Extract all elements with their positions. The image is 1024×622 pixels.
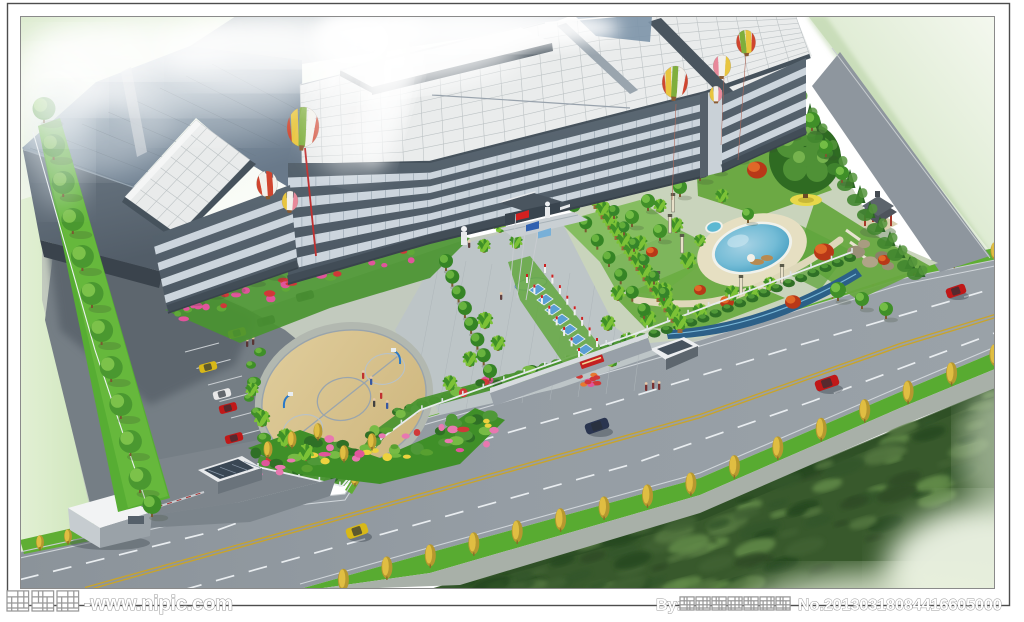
svg-text:No.20130318084416605000: No.20130318084416605000 [798,597,1002,614]
svg-text:-www.nipic.com: -www.nipic.com [84,593,233,615]
svg-text:By:: By: [656,597,682,614]
